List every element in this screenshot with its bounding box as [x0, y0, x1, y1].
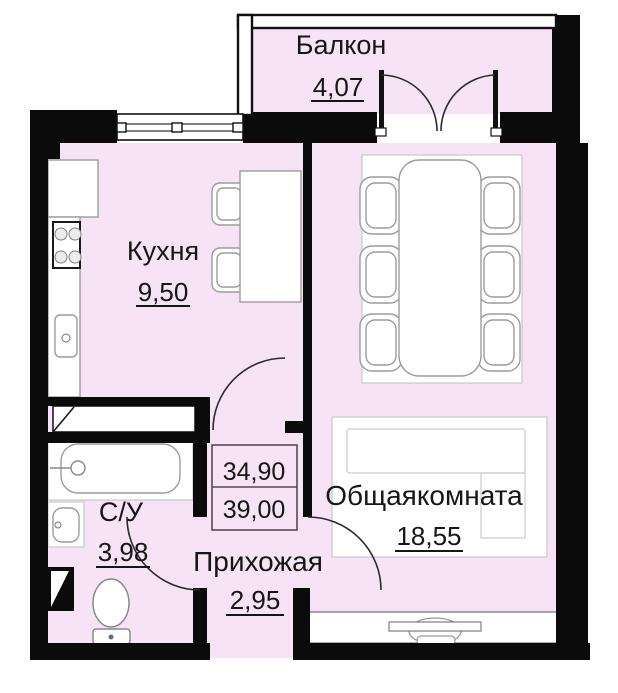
wall-segment — [500, 112, 552, 143]
living-area: 18,55 — [396, 521, 461, 551]
dining-chair — [478, 246, 520, 303]
balcony-area: 4,07 — [313, 72, 364, 102]
wall-segment — [293, 643, 590, 660]
hallway-label: Прихожая — [193, 546, 323, 577]
living-total-value: 34,90 — [223, 458, 286, 486]
wall-segment — [30, 110, 117, 143]
wall-segment — [30, 143, 48, 657]
bathroom-label: С/У — [99, 497, 144, 527]
kitchen-sink-symbol — [55, 315, 77, 357]
bathtub-symbol — [48, 437, 193, 500]
stove-symbol — [53, 222, 81, 268]
closet-symbol — [53, 406, 195, 432]
wall-segment — [48, 397, 195, 406]
wall-segment — [285, 421, 312, 433]
wall-segment — [303, 133, 312, 433]
window-sill — [308, 612, 558, 645]
floor-plan-svg: 34,90 39,00 Балкон 4,07 Кухня 9,50 Общая… — [0, 0, 618, 693]
dining-chair — [478, 177, 520, 234]
dining-chair — [360, 314, 402, 371]
kitchen-table — [240, 171, 301, 302]
wall-segment — [48, 432, 210, 443]
wall-segment — [48, 143, 60, 159]
wall-segment — [552, 15, 580, 143]
wall-segment — [556, 143, 588, 660]
wall-segment — [193, 443, 207, 517]
dining-table — [399, 160, 481, 376]
duct-symbol — [48, 567, 74, 611]
floor-plan: 34,90 39,00 Балкон 4,07 Кухня 9,50 Общая… — [0, 0, 618, 693]
bathroom-area: 3,98 — [98, 537, 149, 567]
wall-segment — [30, 643, 210, 660]
balcony-label: Балкон — [296, 30, 387, 60]
bath-sink-symbol — [48, 502, 84, 547]
dining-chair — [360, 246, 402, 303]
overall-total-value: 39,00 — [223, 496, 286, 524]
wall-segment — [293, 588, 310, 645]
wall-segment — [193, 588, 207, 645]
kitchen-window — [117, 114, 243, 140]
hallway-area: 2,95 — [230, 585, 281, 615]
living-label: Общаякомната — [325, 480, 523, 511]
dining-chair — [360, 177, 402, 234]
fridge-symbol — [48, 160, 98, 217]
wall-segment — [303, 433, 312, 517]
entry-opening — [210, 643, 293, 658]
kitchen-label: Кухня — [127, 236, 199, 266]
toilet-symbol — [93, 579, 130, 644]
kitchen-area: 9,50 — [138, 277, 189, 307]
area-box: 34,90 39,00 — [212, 445, 297, 530]
dining-chair — [478, 314, 520, 371]
